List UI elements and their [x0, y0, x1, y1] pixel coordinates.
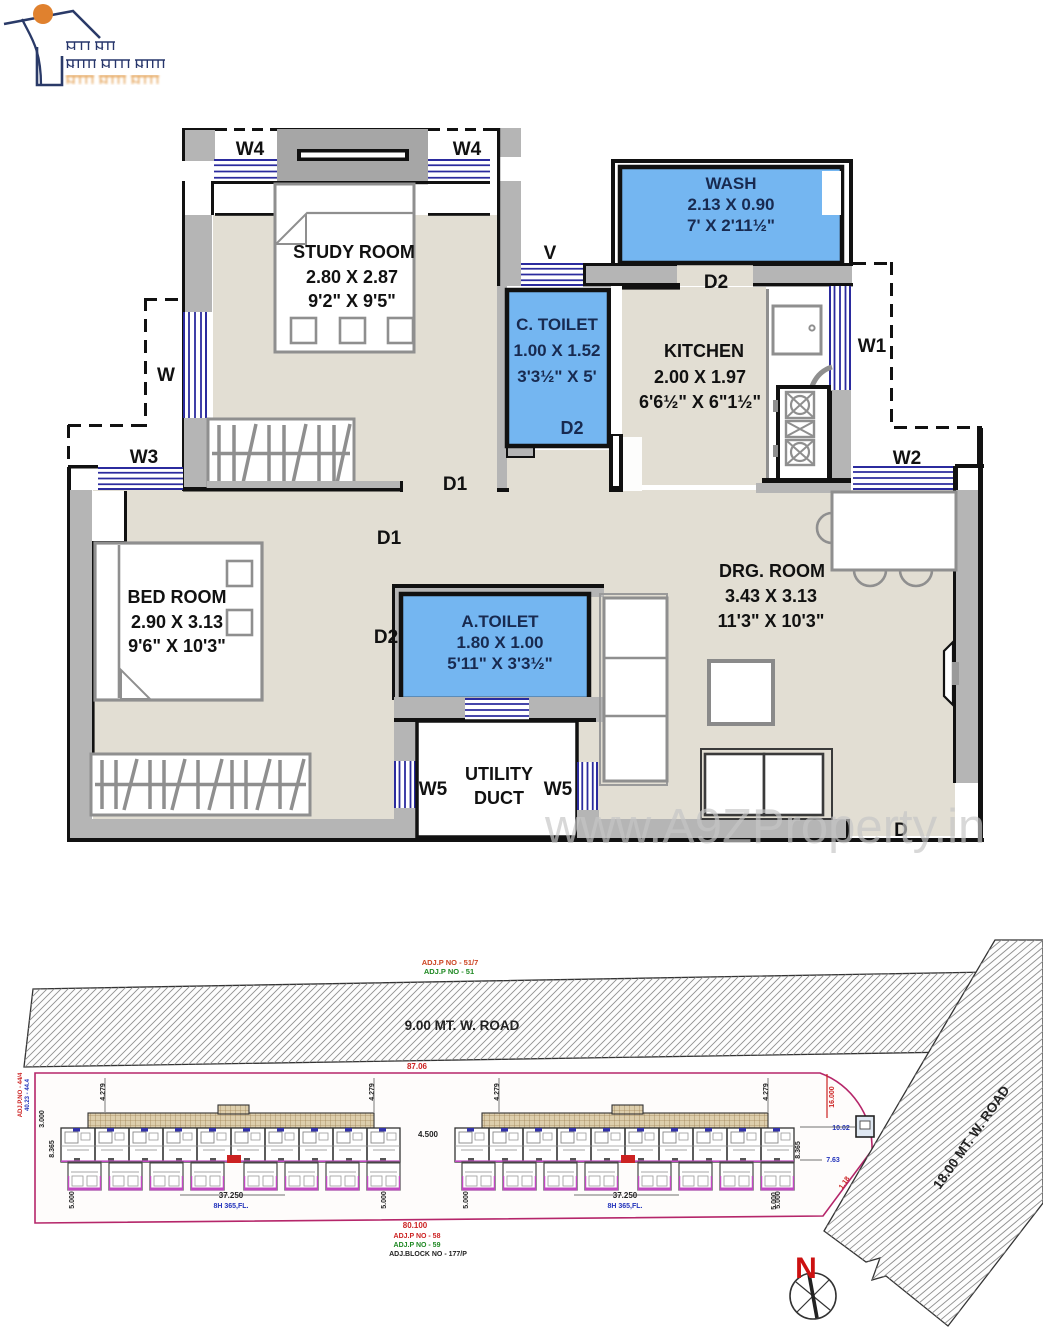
- svg-text:11'3" X 10'3": 11'3" X 10'3": [718, 611, 825, 631]
- svg-text:3'3½" X 5': 3'3½" X 5': [517, 367, 596, 386]
- svg-text:W2: W2: [893, 448, 922, 469]
- svg-text:4.500: 4.500: [418, 1130, 439, 1139]
- svg-text:W3: W3: [130, 447, 159, 468]
- svg-text:9'6" X 10'3": 9'6" X 10'3": [128, 636, 226, 656]
- svg-text:KITCHEN: KITCHEN: [664, 341, 744, 361]
- svg-text:D1: D1: [377, 528, 402, 549]
- svg-text:ADJ.P NO - 51/7: ADJ.P NO - 51/7: [422, 958, 479, 967]
- svg-text:4.279: 4.279: [100, 1083, 107, 1101]
- svg-text:W5: W5: [544, 779, 573, 800]
- svg-text:3.000: 3.000: [39, 1110, 46, 1128]
- svg-text:ADJ.P.NO - 44/4: ADJ.P.NO - 44/4: [18, 1072, 24, 1117]
- svg-text:2.13 X 0.90: 2.13 X 0.90: [688, 195, 775, 214]
- svg-text:5'11" X 3'3½": 5'11" X 3'3½": [447, 654, 553, 673]
- svg-text:3.43 X 3.13: 3.43 X 3.13: [725, 586, 817, 606]
- svg-text:ADJ.P NO - 51: ADJ.P NO - 51: [424, 967, 474, 976]
- svg-text:A.TOILET: A.TOILET: [461, 612, 539, 631]
- svg-text:10.02: 10.02: [832, 1125, 850, 1132]
- svg-text:D2: D2: [374, 627, 398, 648]
- svg-text:40.23 - 44.4: 40.23 - 44.4: [25, 1078, 31, 1111]
- svg-text:WASH: WASH: [706, 174, 757, 193]
- svg-text:6'6½" X 6"1½": 6'6½" X 6"1½": [639, 392, 761, 412]
- svg-text:2.90 X 3.13: 2.90 X 3.13: [131, 612, 223, 632]
- svg-text:ADJ.P NO - 58: ADJ.P NO - 58: [394, 1233, 441, 1240]
- svg-text:7.63: 7.63: [826, 1157, 840, 1164]
- svg-text:W4: W4: [453, 139, 482, 160]
- svg-text:W5: W5: [419, 779, 448, 800]
- svg-text:STUDY ROOM: STUDY ROOM: [293, 242, 415, 262]
- svg-text:8.365: 8.365: [795, 1141, 802, 1159]
- svg-text:N: N: [795, 1252, 817, 1285]
- svg-text:8.365: 8.365: [49, 1140, 56, 1158]
- svg-text:9'2" X 9'5": 9'2" X 9'5": [308, 291, 396, 311]
- svg-text:2.80 X 2.87: 2.80 X 2.87: [306, 267, 398, 287]
- svg-text:W: W: [157, 365, 175, 386]
- svg-text:7' X 2'11½": 7' X 2'11½": [687, 216, 775, 235]
- svg-text:16.000: 16.000: [829, 1086, 836, 1108]
- svg-text:87.06: 87.06: [407, 1062, 428, 1071]
- svg-text:D2: D2: [560, 418, 583, 438]
- svg-text:37.250: 37.250: [219, 1191, 244, 1200]
- svg-text:5.000: 5.000: [771, 1192, 778, 1210]
- svg-text:5.000: 5.000: [69, 1191, 76, 1209]
- svg-text:1.80 X 1.00: 1.80 X 1.00: [457, 633, 544, 652]
- svg-text:C. TOILET: C. TOILET: [516, 315, 598, 334]
- svg-text:4.279: 4.279: [369, 1083, 376, 1101]
- svg-text:5.000: 5.000: [381, 1191, 388, 1209]
- svg-text:1.00 X 1.52: 1.00 X 1.52: [514, 341, 601, 360]
- svg-text:W1: W1: [858, 336, 887, 357]
- svg-text:UTILITY: UTILITY: [465, 764, 533, 784]
- svg-text:www.A9ZProperty.in: www.A9ZProperty.in: [544, 800, 985, 854]
- svg-text:V: V: [544, 243, 557, 264]
- svg-text:DUCT: DUCT: [474, 788, 524, 808]
- svg-text:W4: W4: [236, 139, 265, 160]
- svg-text:9.00 MT. W. ROAD: 9.00 MT. W. ROAD: [405, 1018, 520, 1033]
- svg-text:ADJ.P NO - 59: ADJ.P NO - 59: [394, 1242, 441, 1249]
- svg-text:ADJ.BLOCK NO - 177/P: ADJ.BLOCK NO - 177/P: [389, 1251, 467, 1258]
- svg-text:80.100: 80.100: [403, 1221, 428, 1230]
- svg-text:8H 365,FL.: 8H 365,FL.: [213, 1203, 248, 1210]
- svg-text:2.00 X 1.97: 2.00 X 1.97: [654, 367, 746, 387]
- svg-text:D2: D2: [704, 272, 728, 293]
- svg-text:DRG. ROOM: DRG. ROOM: [719, 561, 825, 581]
- svg-text:D1: D1: [443, 474, 468, 495]
- svg-text:BED ROOM: BED ROOM: [128, 587, 227, 607]
